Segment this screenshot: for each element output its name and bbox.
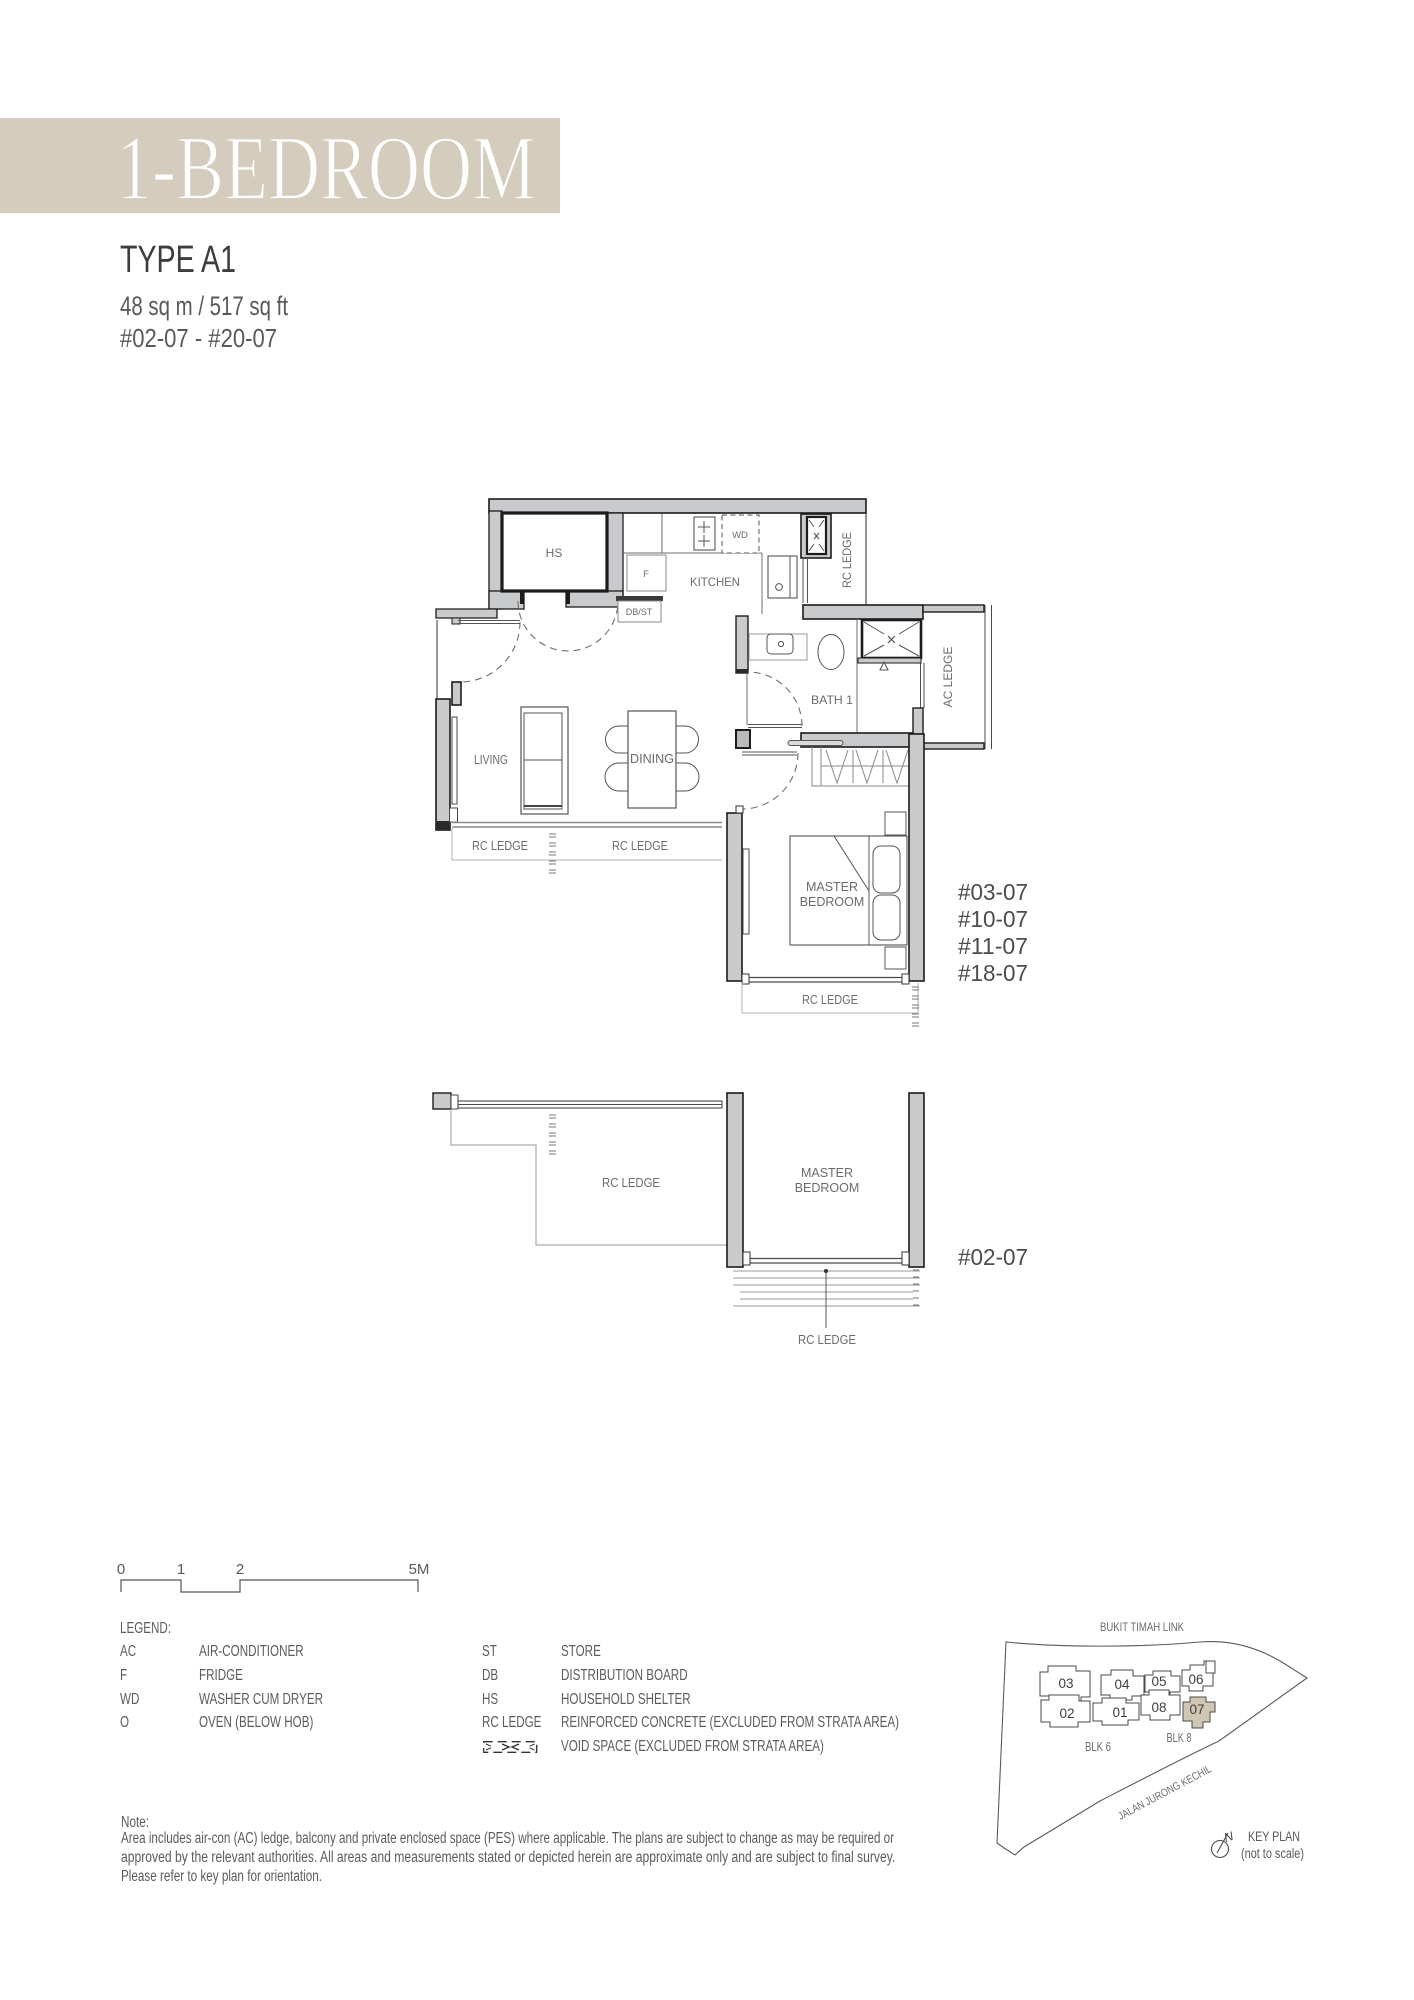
svg-text:HS: HS	[546, 546, 563, 560]
svg-text:BLK 8: BLK 8	[1167, 1731, 1192, 1745]
svg-text:TYPE A1: TYPE A1	[120, 239, 236, 281]
svg-text:BEDROOM: BEDROOM	[795, 1181, 860, 1195]
svg-text:01: 01	[1112, 1705, 1127, 1720]
svg-text:MASTER: MASTER	[801, 1166, 853, 1180]
svg-text:05: 05	[1151, 1674, 1166, 1689]
svg-text:KEY PLAN: KEY PLAN	[1248, 1828, 1300, 1844]
svg-text:AC LEDGE: AC LEDGE	[941, 647, 955, 708]
svg-text:1: 1	[177, 1561, 185, 1578]
svg-text:RC LEDGE: RC LEDGE	[802, 992, 858, 1007]
svg-text:48 sq m / 517 sq ft: 48 sq m / 517 sq ft	[120, 291, 288, 321]
svg-text:#18-07: #18-07	[958, 960, 1028, 986]
svg-text:KITCHEN: KITCHEN	[690, 575, 740, 589]
svg-text:RC LEDGE: RC LEDGE	[840, 532, 854, 588]
svg-text:#10-07: #10-07	[958, 906, 1028, 932]
svg-text:5M: 5M	[409, 1561, 430, 1578]
svg-text:BATH 1: BATH 1	[811, 693, 853, 707]
svg-text:0: 0	[117, 1561, 125, 1578]
svg-text:F: F	[643, 569, 649, 580]
svg-text:#03-07: #03-07	[958, 879, 1028, 905]
svg-text:BEDROOM: BEDROOM	[800, 895, 865, 909]
svg-text:N: N	[1222, 1829, 1236, 1845]
svg-text:RC LEDGE: RC LEDGE	[602, 1175, 660, 1190]
svg-text:BUKIT TIMAH LINK: BUKIT TIMAH LINK	[1100, 1620, 1184, 1634]
svg-text:MASTER: MASTER	[806, 880, 858, 894]
svg-text:02: 02	[1059, 1706, 1074, 1721]
svg-text:RC LEDGE: RC LEDGE	[612, 838, 668, 853]
svg-text:03: 03	[1058, 1676, 1073, 1691]
svg-text:DINING: DINING	[630, 752, 674, 766]
svg-text:1-BEDROOM: 1-BEDROOM	[116, 117, 536, 219]
svg-text:08: 08	[1151, 1700, 1166, 1715]
svg-text:04: 04	[1114, 1677, 1130, 1692]
svg-text:(not to scale): (not to scale)	[1241, 1846, 1304, 1861]
svg-text:#11-07: #11-07	[958, 933, 1028, 959]
svg-text:BLK 6: BLK 6	[1085, 1740, 1111, 1754]
svg-text:06: 06	[1188, 1672, 1203, 1687]
svg-text:#02-07: #02-07	[958, 1244, 1028, 1270]
svg-text:LIVING: LIVING	[474, 753, 508, 767]
svg-text:2: 2	[236, 1561, 244, 1578]
svg-text:RC LEDGE: RC LEDGE	[798, 1332, 856, 1347]
svg-text:07: 07	[1189, 1702, 1204, 1717]
svg-text:JALAN JURONG KECHIL: JALAN JURONG KECHIL	[1116, 1763, 1213, 1822]
svg-text:WD: WD	[732, 530, 748, 541]
svg-text:#02-07 - #20-07: #02-07 - #20-07	[120, 323, 277, 353]
svg-text:RC LEDGE: RC LEDGE	[472, 838, 528, 853]
svg-text:DB/ST: DB/ST	[626, 607, 653, 617]
